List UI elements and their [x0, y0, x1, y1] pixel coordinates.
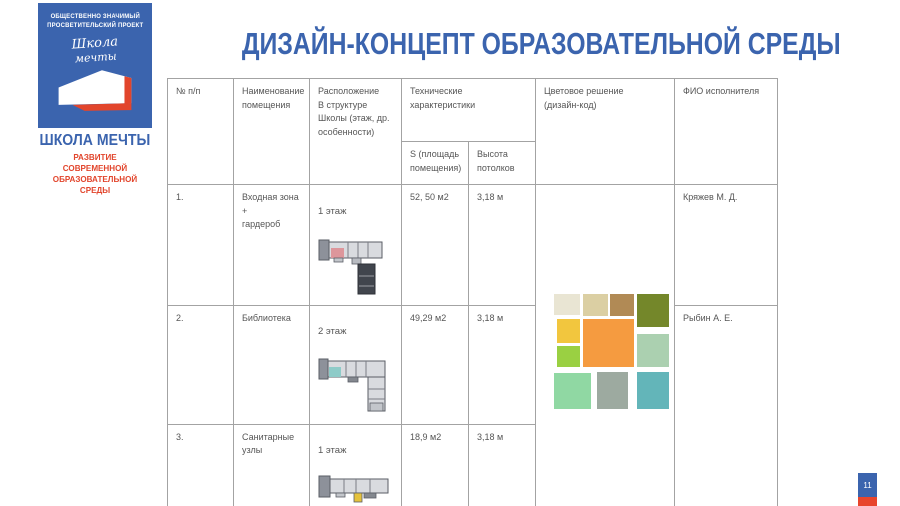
palette-swatch — [554, 294, 580, 315]
page-number: 11 — [858, 473, 877, 497]
page-title: ДИЗАЙН-КОНЦЕПТ ОБРАЗОВАТЕЛЬНОЙ СРЕДЫ — [242, 26, 841, 62]
cell-area-3a: 18,9 м2 — [402, 424, 469, 506]
cell-room-3: Санитарные узлы — [234, 424, 310, 506]
cell-executor-1: Кряжев М. Д. — [675, 185, 778, 306]
palette-swatch — [637, 334, 669, 367]
cell-room-2: Библиотека — [234, 305, 310, 424]
cell-location-2: 2 этаж — [310, 305, 402, 424]
logo-name: ШКОЛА МЕЧТЫ — [40, 132, 151, 150]
palette-swatch — [637, 294, 669, 327]
cell-color-palette — [536, 185, 675, 506]
school-building-icon — [51, 65, 139, 117]
header-room: Наименование помещения — [234, 79, 310, 185]
palette-swatch — [557, 346, 580, 367]
cell-num-1: 1. — [168, 185, 234, 306]
cell-location-3a: 1 этаж — [310, 424, 402, 506]
logo-subtitle: РАЗВИТИЕ СОВРЕМЕННОЙ ОБРАЗОВАТЕЛЬНОЙ СРЕ… — [41, 152, 149, 196]
logo-handwritten-text: Школа мечты — [71, 35, 119, 64]
logo-project-label: ОБЩЕСТВЕННО ЗНАЧИМЫЙ ПРОСВЕТИТЕЛЬСКИЙ ПР… — [47, 12, 143, 31]
logo-block: ОБЩЕСТВЕННО ЗНАЧИМЫЙ ПРОСВЕТИТЕЛЬСКИЙ ПР… — [38, 3, 152, 196]
header-tech: Технические характеристики — [402, 79, 536, 142]
palette-swatch — [554, 373, 591, 409]
design-code-palette — [554, 294, 670, 409]
floor-label: 1 этаж — [318, 444, 395, 458]
header-num: № п/п — [168, 79, 234, 185]
cell-area-1: 52, 50 м2 — [402, 185, 469, 306]
cell-executor-2: Рыбин А. Е. — [675, 305, 778, 506]
cell-ceiling-3a: 3,18 м — [469, 424, 536, 506]
palette-swatch — [583, 319, 634, 367]
cell-ceiling-1: 3,18 м — [469, 185, 536, 306]
cell-num-2: 2. — [168, 305, 234, 424]
palette-swatch — [610, 294, 634, 316]
palette-swatch — [597, 372, 628, 409]
palette-swatch — [637, 372, 669, 409]
floor-label: 2 этаж — [318, 325, 395, 339]
cell-num-3: 3. — [168, 424, 234, 506]
header-area: S (площадь помещения) — [402, 142, 469, 185]
badge-red-bar — [858, 497, 877, 506]
floor-plan-sanitary-1 — [318, 474, 394, 504]
rooms-table: № п/п Наименование помещения Расположени… — [167, 78, 778, 506]
floor-plan-entrance-zone — [318, 234, 396, 298]
header-location: Расположение В структуре Школы (этаж, др… — [310, 79, 402, 185]
table-row: 1. Входная зона + гардероб 1 этаж — [168, 185, 778, 306]
header-color: Цветовое решение (дизайн-код) — [536, 79, 675, 185]
floor-label: 1 этаж — [318, 205, 395, 219]
cell-location-1: 1 этаж — [310, 185, 402, 306]
palette-swatch — [583, 294, 608, 316]
slide: ОБЩЕСТВЕННО ЗНАЧИМЫЙ ПРОСВЕТИТЕЛЬСКИЙ ПР… — [0, 0, 900, 506]
logo-blue-box: ОБЩЕСТВЕННО ЗНАЧИМЫЙ ПРОСВЕТИТЕЛЬСКИЙ ПР… — [38, 3, 152, 128]
page-number-badge: 11 — [858, 473, 877, 506]
floor-plan-library — [318, 355, 392, 417]
header-ceiling: Высота потолков — [469, 142, 536, 185]
cell-area-2: 49,29 м2 — [402, 305, 469, 424]
cell-room-1: Входная зона + гардероб — [234, 185, 310, 306]
palette-swatch — [557, 319, 580, 343]
header-executor: ФИО исполнителя — [675, 79, 778, 185]
cell-ceiling-2: 3,18 м — [469, 305, 536, 424]
title-row: ДИЗАЙН-КОНЦЕПТ ОБРАЗОВАТЕЛЬНОЙ СРЕДЫ — [167, 26, 778, 62]
table-row: 2. Библиотека 2 этаж 49,29 — [168, 305, 778, 424]
